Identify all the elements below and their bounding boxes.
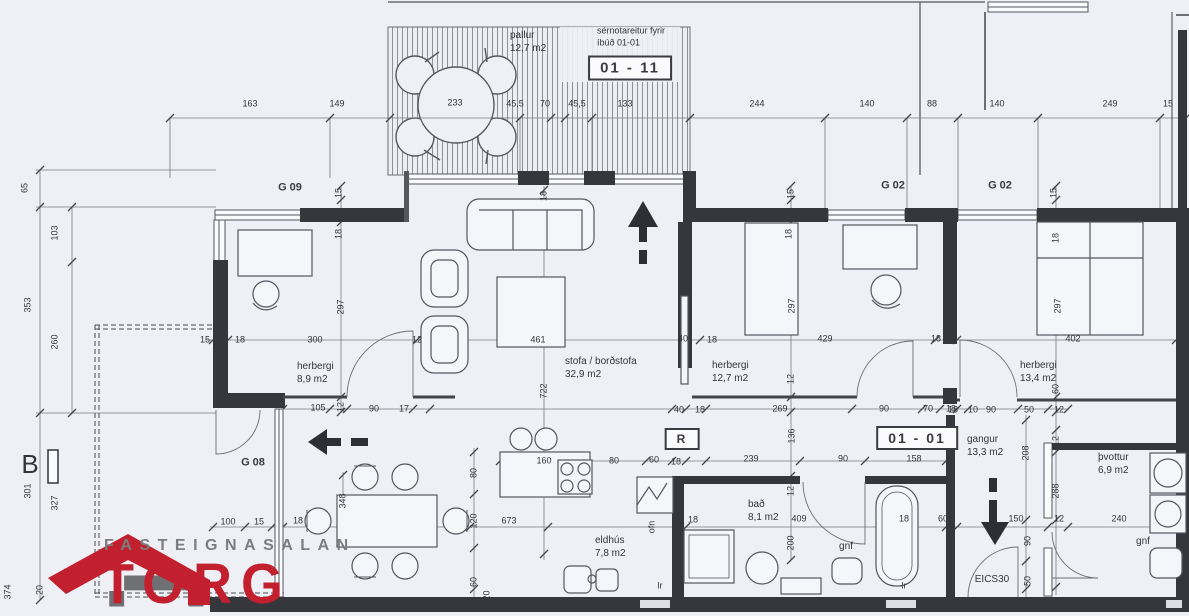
dim-label: 300 <box>307 336 322 345</box>
dim-label: 6,9 m2 <box>1098 466 1129 476</box>
dim-label: 429 <box>817 335 832 344</box>
torg-logo: FASTEIGNASALAN TORG <box>0 525 520 612</box>
dim-label: 297 <box>788 298 797 313</box>
room-label-bad: bað <box>748 500 765 510</box>
dim-label: 140 <box>989 100 1004 109</box>
dim-label: 7,8 m2 <box>595 549 626 559</box>
unit-badge-01-01: 01 - 01 <box>876 426 958 450</box>
dim-label: 12 <box>1054 406 1064 415</box>
garden-label-g08: G 08 <box>241 458 265 469</box>
room-label-herbergi-3: herbergi <box>1020 361 1057 371</box>
dim-label: 8,1 m2 <box>748 513 779 523</box>
dim-label: 140 <box>859 100 874 109</box>
dim-label: 18 <box>671 458 681 467</box>
dim-label: 158 <box>906 455 921 464</box>
dim-label: 15 <box>335 188 344 198</box>
dim-label: 149 <box>329 100 344 109</box>
dim-label: 15 <box>200 336 210 345</box>
dim-label: lr <box>1176 582 1185 587</box>
dim-label: 8,9 m2 <box>297 375 328 385</box>
dim-label: 722 <box>540 383 549 398</box>
dim-label: 40 <box>678 335 688 344</box>
dim-label: 88 <box>927 100 937 109</box>
dim-label: 327 <box>51 495 60 510</box>
deck-note-line2: íbúð 01-01 <box>597 39 640 48</box>
dim-label: 12 <box>412 336 422 345</box>
dim-label: 18 <box>899 515 909 524</box>
dim-label: 50 <box>1024 576 1033 586</box>
dim-label: 297 <box>1054 298 1063 313</box>
dim-label: 18 <box>688 516 698 525</box>
dim-label: 136 <box>788 428 797 443</box>
unit-badge-01-11: 01 - 11 <box>588 56 672 81</box>
dim-label: lr <box>658 582 663 591</box>
dim-label: 18 <box>707 336 717 345</box>
garden-label-g02-a: G 02 <box>881 181 905 192</box>
room-label-gangur: gangur <box>967 435 998 445</box>
room-label-eldhus: eldhús <box>595 536 624 546</box>
dim-label: 18 <box>948 406 958 415</box>
dim-label: 288 <box>1052 483 1061 498</box>
dim-label: 80 <box>470 468 479 478</box>
dim-label: 18 <box>785 229 794 239</box>
dim-label: 18 <box>695 406 705 415</box>
dim-label: 402 <box>1065 335 1080 344</box>
dim-label: 90 <box>986 406 996 415</box>
dim-label: 260 <box>51 334 60 349</box>
dim-label: 17 <box>399 405 409 414</box>
dim-label: 150 <box>1008 515 1023 524</box>
fixture-label-gnf-bath: gnf <box>839 542 853 552</box>
dim-label: 32,9 m2 <box>565 370 601 380</box>
dim-label: 269 <box>772 405 787 414</box>
dim-label: 409 <box>791 515 806 524</box>
room-label-thvottur: þvottur <box>1098 453 1129 463</box>
deck-area: 12,7 m2 <box>510 44 546 54</box>
dim-label: 244 <box>749 100 764 109</box>
deck-note-line1: sérnotareitur fyrir <box>597 27 665 36</box>
dim-label: 90 <box>1024 536 1033 546</box>
dim-label: 18 <box>235 336 245 345</box>
dim-label: 12,7 m2 <box>712 374 748 384</box>
dim-label: 353 <box>24 297 33 312</box>
dim-label: 45,5 <box>506 100 524 109</box>
dim-label: 105 <box>310 404 325 413</box>
dim-label: 133 <box>617 100 632 109</box>
dim-label: 70 <box>540 100 550 109</box>
dim-label: 103 <box>51 225 60 240</box>
dim-label: 160 <box>536 457 551 466</box>
plan-labels: pallur12,7 m2sérnotareitur fyriríbúð 01-… <box>0 0 1189 612</box>
dim-label: 13,4 m2 <box>1020 374 1056 384</box>
dim-label: 348 <box>339 493 348 508</box>
door-spec-label: EICS30 <box>975 575 1009 585</box>
dim-label: 239 <box>743 455 758 464</box>
dim-label: 249 <box>1102 100 1117 109</box>
section-mark-b: B <box>21 451 38 477</box>
dim-label: 90 <box>838 455 848 464</box>
floor-plan: pallur12,7 m2sérnotareitur fyriríbúð 01-… <box>0 0 1189 612</box>
dim-label: 200 <box>787 535 796 550</box>
dim-label: 60 <box>1052 384 1061 394</box>
dim-label: 10 <box>968 406 978 415</box>
dim-label: 297 <box>337 299 346 314</box>
dim-label: 15 <box>1050 188 1059 198</box>
dim-label: 70 <box>923 405 933 414</box>
dim-label: 18 <box>540 191 549 201</box>
dim-label: 461 <box>530 336 545 345</box>
dim-label: 15 <box>787 189 796 199</box>
dim-label: 40 <box>674 406 684 415</box>
dim-label: 80 <box>609 457 619 466</box>
dim-label: 65 <box>21 183 30 193</box>
dim-label: 60 <box>649 456 659 465</box>
dim-label: 15 <box>1163 100 1173 109</box>
dim-label: 18 <box>335 229 344 239</box>
dim-label: 208 <box>1022 445 1031 460</box>
dim-label: 301 <box>24 483 33 498</box>
room-label-stofa: stofa / borðstofa <box>565 357 637 367</box>
deck-label: pallur <box>510 31 534 41</box>
dim-label: 233 <box>447 99 462 108</box>
dim-label: 12 <box>787 486 796 496</box>
logo-brand: TORG <box>101 552 292 616</box>
room-label-herbergi-2: herbergi <box>712 361 749 371</box>
r-badge: R <box>665 428 700 450</box>
dim-label: 12 <box>787 374 796 384</box>
dim-label: 18 <box>931 335 941 344</box>
dim-label: 13,3 m2 <box>967 448 1003 458</box>
room-label-herbergi-1: herbergi <box>297 362 334 372</box>
dim-label: 240 <box>1111 515 1126 524</box>
dim-label: 18 <box>1052 233 1061 243</box>
dim-label: 12 <box>1054 515 1064 524</box>
dim-label: 12 <box>1052 436 1061 446</box>
dim-label: 90 <box>369 405 379 414</box>
dim-label: 60 <box>938 515 948 524</box>
dim-label: 50 <box>1024 406 1034 415</box>
fixture-label-ofn: ofn <box>648 521 657 534</box>
dim-label: 90 <box>879 405 889 414</box>
garden-label-g02-b: G 02 <box>988 181 1012 192</box>
dim-label: 12 <box>337 402 346 412</box>
dim-label: 45,5 <box>568 100 586 109</box>
dim-label: 163 <box>242 100 257 109</box>
fixture-label-gnf-laundry: gnf <box>1136 537 1150 547</box>
dim-label: lr <box>902 582 907 591</box>
garden-label-g09: G 09 <box>278 183 302 194</box>
